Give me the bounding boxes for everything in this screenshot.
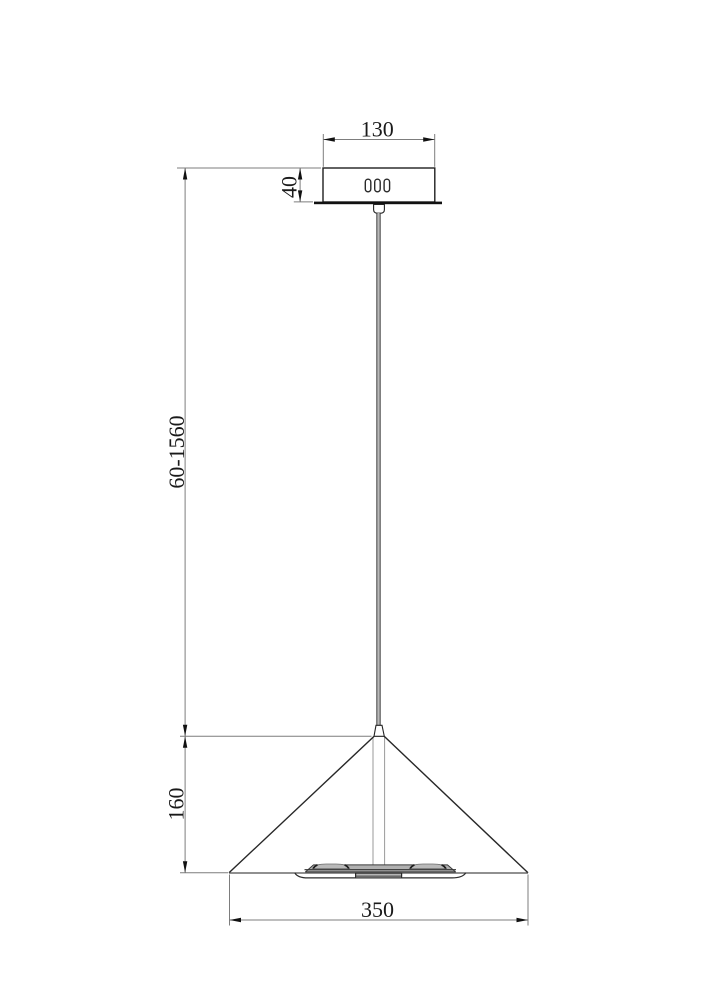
svg-text:40: 40 xyxy=(276,176,301,198)
svg-text:130: 130 xyxy=(361,117,394,142)
svg-text:350: 350 xyxy=(361,897,394,922)
svg-text:160: 160 xyxy=(163,788,188,821)
svg-text:60-1560: 60-1560 xyxy=(164,415,189,488)
